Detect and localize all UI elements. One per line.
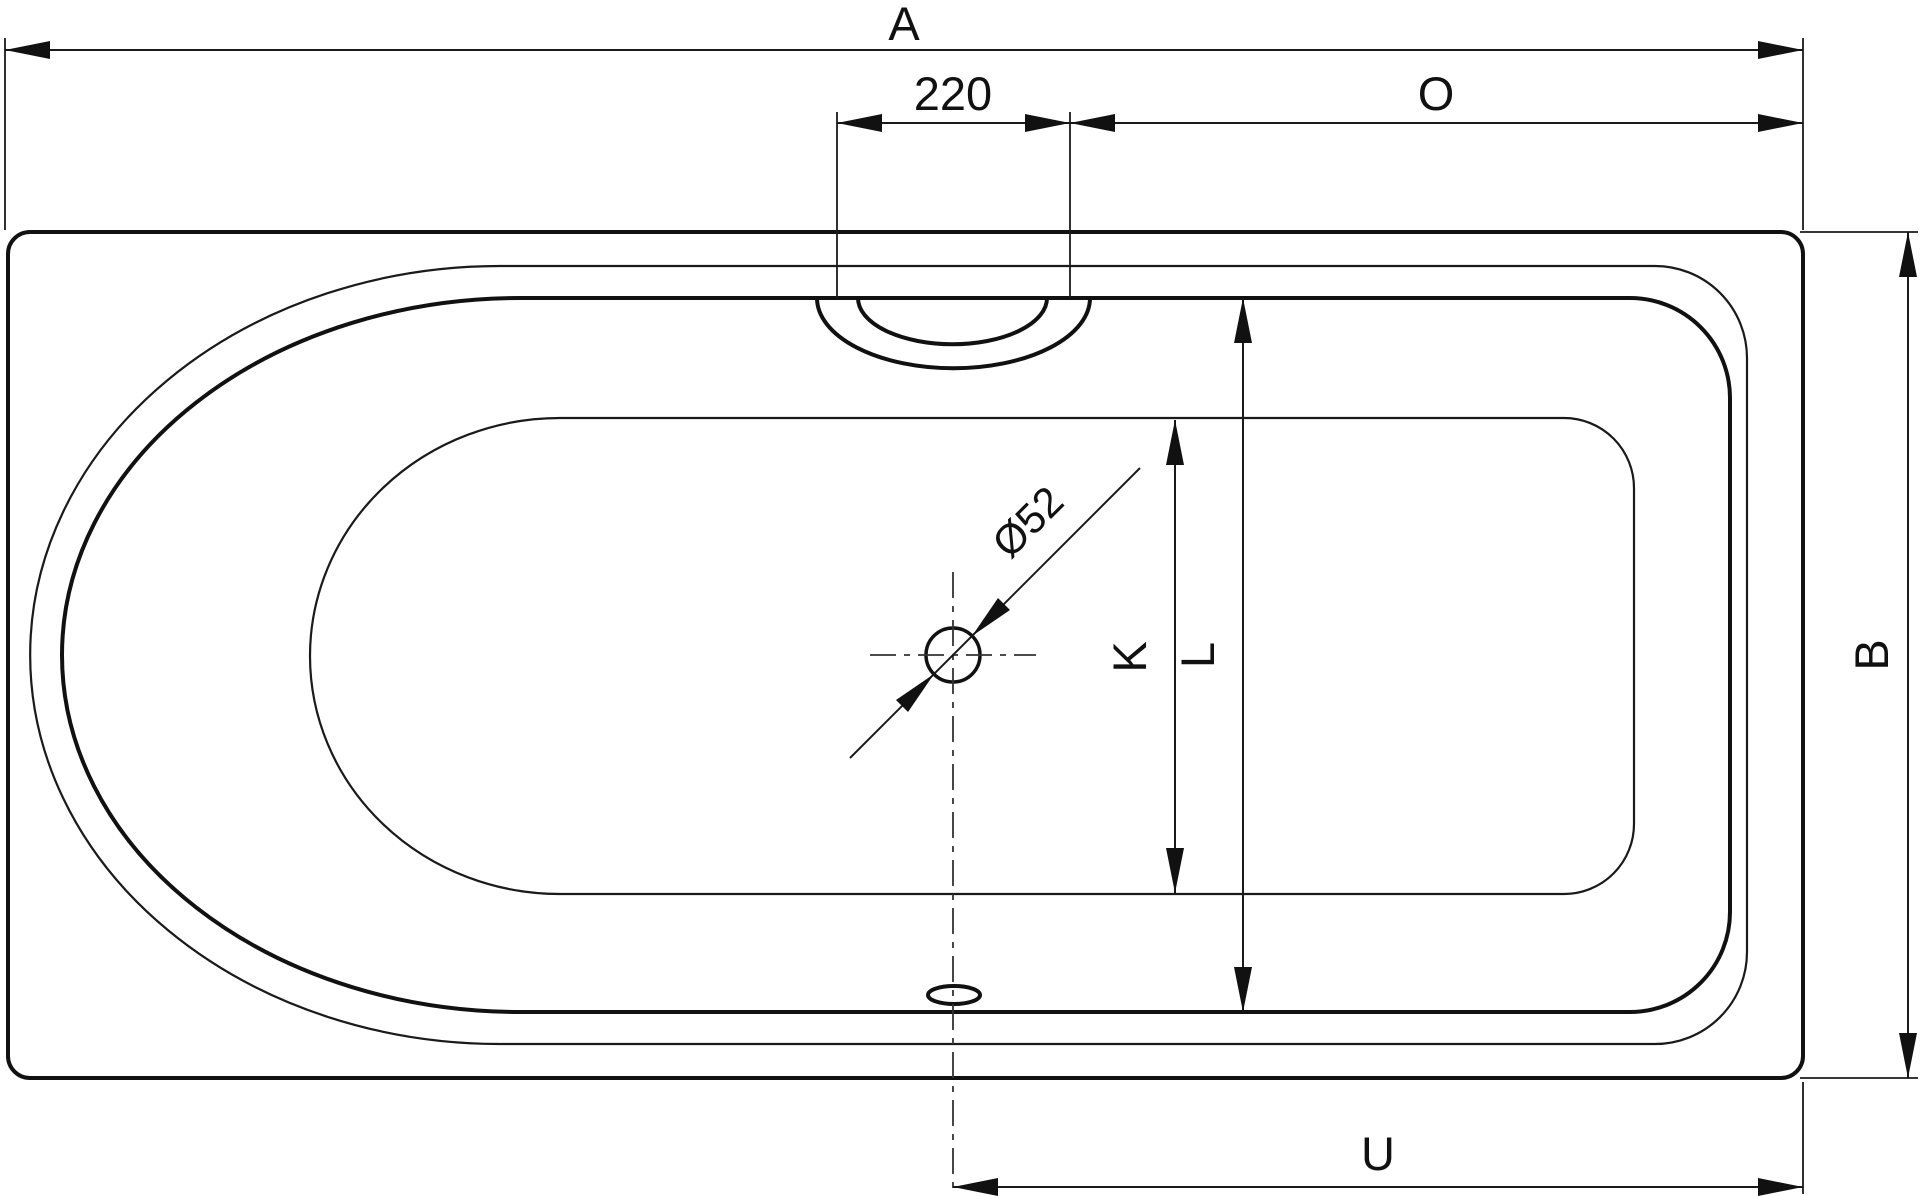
arrowhead-left: [5, 41, 50, 59]
arrowhead-left: [1070, 114, 1115, 132]
arrowhead-right: [1758, 41, 1803, 59]
arrowhead-right: [1025, 114, 1070, 132]
dimension-O: O: [1070, 67, 1803, 132]
dimension-label-U: U: [1361, 1127, 1395, 1180]
arrowhead-left: [953, 1178, 998, 1196]
bathtub-plan-drawing: A 220 O B: [0, 0, 1920, 1196]
arrowhead-bottom: [1166, 848, 1184, 893]
bathtub-contours: [8, 232, 1803, 1192]
dimension-drain-diameter: Ø52: [850, 468, 1140, 758]
dimension-label-220: 220: [914, 67, 992, 120]
bottom-outlet-oval: [928, 986, 980, 1004]
dimension-label-L: L: [1171, 642, 1224, 668]
arrowhead-bottom: [1899, 1033, 1917, 1078]
dimension-label-B: B: [1845, 639, 1898, 670]
dimension-A: A: [5, 0, 1803, 230]
arrowhead-top: [1234, 298, 1252, 343]
dimension-B: B: [1800, 232, 1918, 1078]
arrowhead-top: [1899, 232, 1917, 277]
arrowhead-top: [1166, 420, 1184, 465]
arrowhead-right: [1758, 1178, 1803, 1196]
dimension-label-K: K: [1103, 641, 1156, 672]
dimension-U: U: [953, 1082, 1803, 1196]
dimension-L: L: [1171, 298, 1252, 1012]
dimension-220: 220: [837, 67, 1070, 298]
overflow-recess-inner-arc: [858, 298, 1047, 344]
basin-floor-outline: [310, 418, 1634, 894]
dimension-label-drain-diameter: Ø52: [983, 477, 1072, 566]
arrowhead-bottom: [1234, 967, 1252, 1012]
arrowhead-left: [837, 114, 882, 132]
overflow-recess-outer-arc: [817, 298, 1090, 368]
dimension-label-A: A: [888, 0, 920, 50]
arrowhead-right: [1758, 114, 1803, 132]
dimension-label-O: O: [1418, 67, 1455, 120]
technical-drawing-page: A 220 O B: [0, 0, 1920, 1196]
